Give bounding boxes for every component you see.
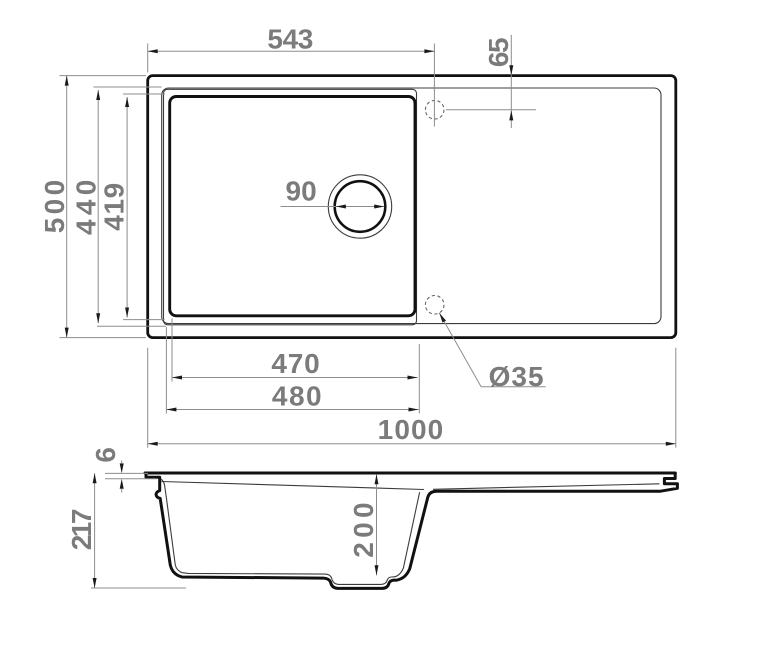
- svg-text:Ø35: Ø35: [489, 361, 545, 392]
- svg-text:65: 65: [483, 38, 514, 67]
- svg-text:90: 90: [286, 176, 317, 207]
- svg-text:1000: 1000: [378, 414, 445, 445]
- svg-text:217: 217: [66, 509, 97, 550]
- svg-text:200: 200: [348, 498, 379, 558]
- svg-text:543: 543: [267, 24, 313, 55]
- svg-text:470: 470: [271, 348, 320, 379]
- svg-text:419: 419: [99, 182, 130, 231]
- svg-text:500: 500: [39, 176, 70, 233]
- svg-text:440: 440: [71, 175, 102, 235]
- svg-text:480: 480: [272, 380, 323, 411]
- svg-text:6: 6: [90, 447, 121, 463]
